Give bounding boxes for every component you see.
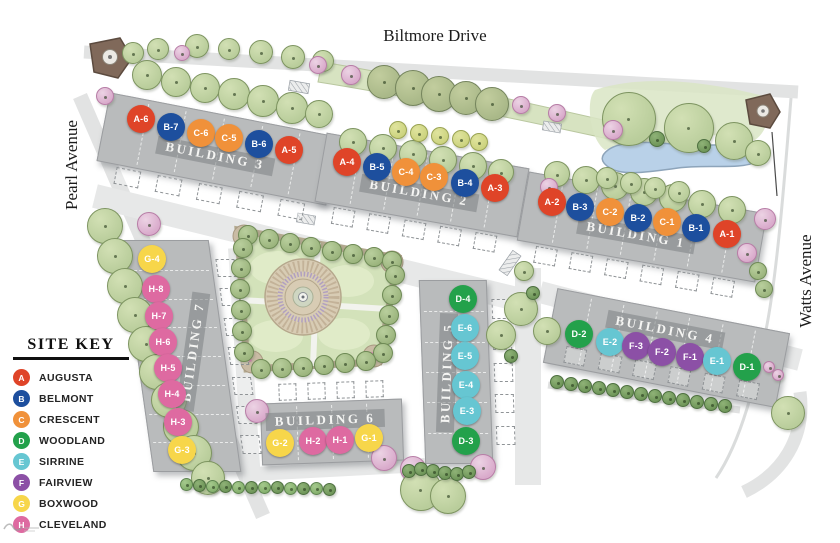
unit-badge-a-5[interactable]: A-5 xyxy=(275,136,303,164)
key-name: BELMONT xyxy=(39,393,94,405)
watermark-logo xyxy=(2,520,42,534)
unit-badge-e-6[interactable]: E-6 xyxy=(451,314,479,342)
unit-badge-h-5[interactable]: H-5 xyxy=(154,354,182,382)
unit-badge-a-3[interactable]: A-3 xyxy=(481,174,509,202)
unit-badge-a-6[interactable]: A-6 xyxy=(127,105,155,133)
unit-badge-e-2[interactable]: E-2 xyxy=(596,328,624,356)
unit-badge-e-4[interactable]: E-4 xyxy=(452,371,480,399)
unit-badge-h-2[interactable]: H-2 xyxy=(299,427,327,455)
unit-badge-c-1[interactable]: C-1 xyxy=(653,208,681,236)
key-name: CLEVELAND xyxy=(39,519,107,531)
unit-badge-b-5[interactable]: B-5 xyxy=(363,153,391,181)
street-label-watts-avenue: Watts Avenue xyxy=(796,211,816,351)
unit-badge-h-6[interactable]: H-6 xyxy=(149,328,177,356)
key-name: SIRRINE xyxy=(39,456,84,468)
unit-badge-f-1[interactable]: F-1 xyxy=(676,343,704,371)
unit-badge-f-3[interactable]: F-3 xyxy=(622,332,650,360)
site-key-entry-woodland: DWOODLAND xyxy=(13,432,129,449)
unit-badge-b-4[interactable]: B-4 xyxy=(451,169,479,197)
site-key-entries: AAUGUSTABBELMONTCCRESCENTDWOODLANDESIRRI… xyxy=(13,369,129,533)
unit-badge-g-2[interactable]: G-2 xyxy=(266,429,294,457)
unit-badge-b-1[interactable]: B-1 xyxy=(682,214,710,242)
unit-badge-b-3[interactable]: B-3 xyxy=(566,193,594,221)
unit-badge-c-2[interactable]: C-2 xyxy=(596,198,624,226)
site-plan: BUILDING 3A-6B-7C-6C-5B-6A-5BUILDING 2A-… xyxy=(0,0,840,543)
key-letter-badge: B xyxy=(13,390,30,407)
site-key-rule xyxy=(13,357,129,360)
key-letter-badge: C xyxy=(13,411,30,428)
unit-badge-a-2[interactable]: A-2 xyxy=(538,188,566,216)
key-name: WOODLAND xyxy=(39,435,105,447)
unit-badge-d-4[interactable]: D-4 xyxy=(449,285,477,313)
key-letter-badge: G xyxy=(13,495,30,512)
unit-badge-d-3[interactable]: D-3 xyxy=(452,427,480,455)
site-key-entry-belmont: BBELMONT xyxy=(13,390,129,407)
unit-badge-e-1[interactable]: E-1 xyxy=(703,347,731,375)
unit-badge-h-3[interactable]: H-3 xyxy=(164,408,192,436)
unit-badge-h-8[interactable]: H-8 xyxy=(142,275,170,303)
site-key-entry-crescent: CCRESCENT xyxy=(13,411,129,428)
key-letter-badge: D xyxy=(13,432,30,449)
unit-badge-b-7[interactable]: B-7 xyxy=(157,113,185,141)
key-name: AUGUSTA xyxy=(39,372,93,384)
unit-badge-e-3[interactable]: E-3 xyxy=(453,397,481,425)
site-key-entry-augusta: AAUGUSTA xyxy=(13,369,129,386)
site-key: SITE KEY AAUGUSTABBELMONTCCRESCENTDWOODL… xyxy=(13,336,129,537)
unit-badge-d-1[interactable]: D-1 xyxy=(733,353,761,381)
unit-badge-h-4[interactable]: H-4 xyxy=(158,380,186,408)
key-name: FAIRVIEW xyxy=(39,477,93,489)
key-letter-badge: A xyxy=(13,369,30,386)
unit-badge-e-5[interactable]: E-5 xyxy=(451,342,479,370)
key-name: BOXWOOD xyxy=(39,498,98,510)
site-key-entry-sirrine: ESIRRINE xyxy=(13,453,129,470)
unit-badge-g-1[interactable]: G-1 xyxy=(355,424,383,452)
unit-badge-b-6[interactable]: B-6 xyxy=(245,130,273,158)
unit-badge-g-4[interactable]: G-4 xyxy=(138,245,166,273)
unit-badge-c-4[interactable]: C-4 xyxy=(392,158,420,186)
unit-badge-b-2[interactable]: B-2 xyxy=(624,204,652,232)
site-key-entry-boxwood: GBOXWOOD xyxy=(13,495,129,512)
unit-badge-c-5[interactable]: C-5 xyxy=(215,124,243,152)
unit-badge-c-3[interactable]: C-3 xyxy=(420,163,448,191)
key-letter-badge: E xyxy=(13,453,30,470)
key-letter-badge: F xyxy=(13,474,30,491)
street-label-pearl-avenue: Pearl Avenue xyxy=(62,95,82,235)
unit-badge-h-7[interactable]: H-7 xyxy=(145,302,173,330)
unit-badge-g-3[interactable]: G-3 xyxy=(168,436,196,464)
street-label-biltmore-drive: Biltmore Drive xyxy=(335,26,535,46)
site-key-entry-fairview: FFAIRVIEW xyxy=(13,474,129,491)
unit-badge-f-2[interactable]: F-2 xyxy=(648,338,676,366)
unit-badge-a-4[interactable]: A-4 xyxy=(333,148,361,176)
key-name: CRESCENT xyxy=(39,414,100,426)
site-key-title: SITE KEY xyxy=(13,336,129,354)
unit-badge-d-2[interactable]: D-2 xyxy=(565,320,593,348)
unit-badge-c-6[interactable]: C-6 xyxy=(187,119,215,147)
unit-badge-a-1[interactable]: A-1 xyxy=(713,220,741,248)
unit-badge-h-1[interactable]: H-1 xyxy=(326,426,354,454)
